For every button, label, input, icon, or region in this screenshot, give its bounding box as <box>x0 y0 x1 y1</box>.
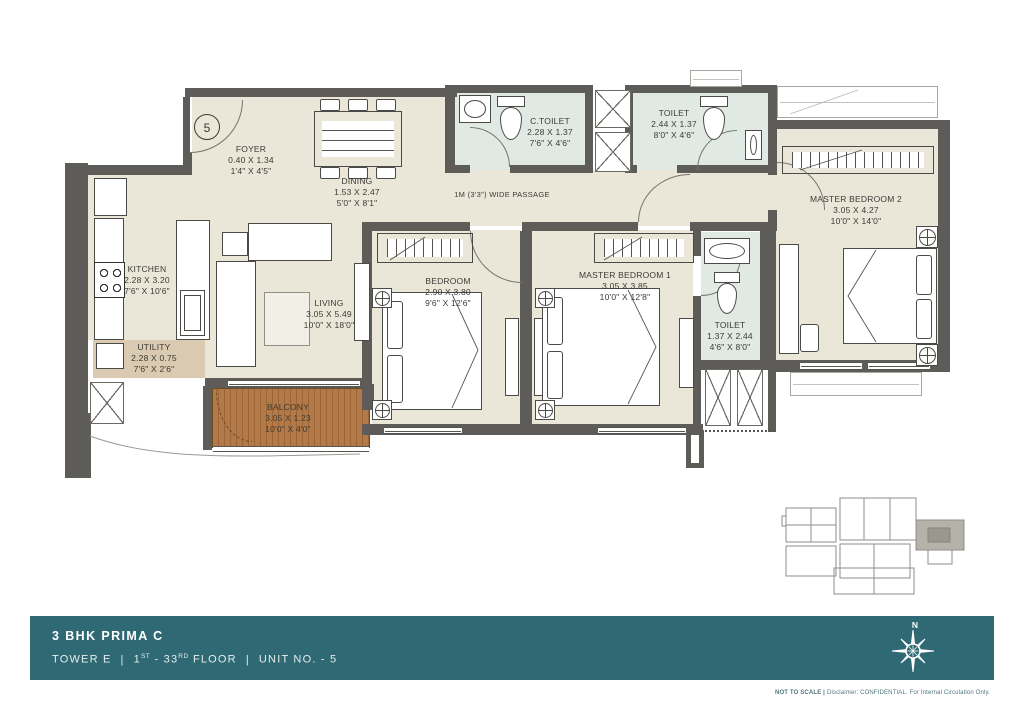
wardrobe <box>377 233 473 263</box>
wall-segment <box>88 165 192 175</box>
unit-number: 5 <box>204 121 211 135</box>
wall-segment <box>362 222 470 231</box>
entry-door-leaf <box>183 97 190 153</box>
room-dim-m: 1.53 X 2.47 <box>312 187 402 198</box>
room-name: BEDROOM <box>400 276 496 287</box>
shaft-box <box>595 90 631 128</box>
column-marker-icon <box>372 288 392 308</box>
bed <box>843 248 937 344</box>
room-label-master-bedroom-2: MASTER BEDROOM 2 3.05 X 4.27 10'0" X 14'… <box>790 194 922 227</box>
room-dim-ft: 10'0" X 12'8" <box>558 292 692 303</box>
floor-range-start-suffix: ST <box>141 653 150 660</box>
room-name: TOILET <box>694 320 766 331</box>
dining-chair <box>320 99 340 111</box>
room-label-foyer: FOYER 0.40 X 1.34 1'4" X 4'5" <box>205 144 297 177</box>
dining-chair <box>376 99 396 111</box>
sofa <box>248 223 332 261</box>
column-marker-icon <box>372 400 392 420</box>
washbasin-icon <box>745 130 762 160</box>
pillow <box>547 351 563 399</box>
room-dim-m: 3.05 X 4.27 <box>790 205 922 216</box>
room-label-common-toilet: C.TOILET 2.28 X 1.37 7'6" X 4'6" <box>506 116 594 149</box>
wc-icon <box>714 272 740 314</box>
room-label-dining: DINING 1.53 X 2.47 5'0" X 8'1" <box>312 176 402 209</box>
compass-north-label: N <box>892 621 938 630</box>
dining-table <box>314 111 402 167</box>
page: 5 FOYER 0.40 X 1.34 1'4" X 4'5" DINING 1… <box>0 0 1024 724</box>
floor-word: FLOOR <box>193 654 237 666</box>
room-label-kitchen: KITCHEN 2.28 X 3.20 7'6" X 10'6" <box>108 264 186 297</box>
refrigerator <box>94 178 127 216</box>
column-marker-icon <box>535 400 555 420</box>
wall-segment <box>938 120 950 372</box>
room-dim-ft: 10'0" X 18'0" <box>288 320 370 331</box>
separator: | <box>121 654 125 666</box>
room-dim-m: 1.37 X 2.44 <box>694 331 766 342</box>
room-name: BALCONY <box>242 402 334 413</box>
column-marker-icon <box>916 344 938 366</box>
room-name: C.TOILET <box>506 116 594 127</box>
dresser <box>679 318 694 388</box>
room-dim-ft: 1'4" X 4'5" <box>205 166 297 177</box>
column-marker-icon <box>916 226 938 248</box>
pillow <box>916 299 932 339</box>
sliding-door <box>228 380 360 387</box>
compass-icon <box>892 630 934 672</box>
wall-segment <box>522 222 638 231</box>
room-dim-ft: 9'6" X 12'6" <box>400 298 496 309</box>
shaft-box <box>595 132 631 172</box>
key-plan <box>778 492 968 597</box>
room-name: LIVING <box>288 298 370 309</box>
room-label-toilet-top: TOILET 2.44 X 1.37 8'0" X 4'6" <box>628 108 720 141</box>
disclaimer-note: NOT TO SCALE |Disclaimer: CONFIDENTIAL. … <box>775 690 990 696</box>
wall-segment <box>690 222 776 231</box>
washbasin-icon <box>704 238 750 264</box>
shaft-box <box>90 382 124 424</box>
unit-subtitle: TOWER E|1ST - 33RD FLOOR|UNIT NO. - 5 <box>52 653 337 666</box>
floor-range-end-suffix: RD <box>178 653 188 660</box>
room-dim-ft: 4'6" X 8'0" <box>694 342 766 353</box>
pillow <box>916 255 932 295</box>
floor-range-start: 1 <box>134 654 141 666</box>
wall-segment <box>510 165 593 173</box>
room-dim-m: 2.44 X 1.37 <box>628 119 720 130</box>
room-name: DINING <box>312 176 402 187</box>
unit-title: 3 BHK PRIMA C <box>52 629 164 643</box>
sofa-chaise <box>216 261 256 367</box>
unit-number-label: UNIT NO. - 5 <box>259 654 337 666</box>
bedside-unit <box>505 318 519 396</box>
room-dim-ft: 5'0" X 8'1" <box>312 198 402 209</box>
wall-segment <box>445 165 470 173</box>
compass: N <box>892 621 938 675</box>
floor-range-end: - 33 <box>155 654 179 666</box>
wall-segment <box>768 368 776 432</box>
room-dim-m: 2.28 X 0.75 <box>108 353 200 364</box>
chair <box>800 324 819 352</box>
window <box>384 427 462 434</box>
room-dim-m: 3.05 X 5.49 <box>288 309 370 320</box>
room-dim-ft: 7'6" X 2'6" <box>108 364 200 375</box>
wardrobe <box>782 146 934 174</box>
room-dim-m: 0.40 X 1.34 <box>205 155 297 166</box>
room-name: UTILITY <box>108 342 200 353</box>
pillow <box>387 355 403 403</box>
room-dim-m: 2.90 X 3.80 <box>400 287 496 298</box>
room-dim-ft: 7'6" X 4'6" <box>506 138 594 149</box>
wardrobe <box>594 233 694 263</box>
room-dim-m: 2.28 X 3.20 <box>108 275 186 286</box>
dotted-projection-line <box>701 430 775 432</box>
room-label-living: LIVING 3.05 X 5.49 10'0" X 18'0" <box>288 298 370 331</box>
ledge-top-right <box>777 86 938 118</box>
study-desk <box>779 244 799 354</box>
ledge-below-master-bedroom-2 <box>790 372 922 396</box>
room-name: TOILET <box>628 108 720 119</box>
room-dim-ft: 10'0" X 4'0" <box>242 424 334 435</box>
room-label-master-bedroom-1: MASTER BEDROOM 1 3.05 X 3.85 10'0" X 12'… <box>558 270 692 303</box>
wall-segment <box>203 386 212 450</box>
wall-segment <box>693 368 701 432</box>
column-marker-icon <box>535 288 555 308</box>
room-dim-m: 2.28 X 1.37 <box>506 127 594 138</box>
window <box>800 362 862 370</box>
room-name: KITCHEN <box>108 264 186 275</box>
room-label-balcony: BALCONY 3.05 X 1.23 10'0" X 4'0" <box>242 402 334 435</box>
shaft-box <box>705 369 731 426</box>
washbasin-icon <box>459 95 491 123</box>
shaft-box <box>737 369 763 426</box>
ledge-above-toilet <box>690 70 742 87</box>
room-name: MASTER BEDROOM 1 <box>558 270 692 281</box>
wall-segment <box>693 231 701 256</box>
wall-segment <box>776 120 950 129</box>
separator: | <box>246 654 250 666</box>
room-name: FOYER <box>205 144 297 155</box>
room-dim-ft: 7'6" X 10'6" <box>108 286 186 297</box>
side-table <box>222 232 248 256</box>
wall-segment <box>768 85 777 175</box>
passage-label: 1M (3'3") WIDE PASSAGE <box>438 190 566 199</box>
wall-segment <box>185 88 457 97</box>
wall-segment <box>445 85 593 93</box>
wall-segment <box>445 85 455 172</box>
unit-number-circle: 5 <box>194 114 220 140</box>
window <box>598 427 686 434</box>
room-dim-ft: 10'0" X 14'0" <box>790 216 922 227</box>
room-dim-m: 3.05 X 1.23 <box>242 413 334 424</box>
balcony-railing <box>213 446 369 452</box>
wall-segment <box>65 413 91 478</box>
bed <box>382 292 482 410</box>
column-hollow <box>686 430 704 468</box>
room-label-utility: UTILITY 2.28 X 0.75 7'6" X 2'6" <box>108 342 200 375</box>
room-label-toilet-mid: TOILET 1.37 X 2.44 4'6" X 8'0" <box>694 320 766 353</box>
disclaimer-text: Disclaimer: CONFIDENTIAL. For Internal C… <box>827 690 990 696</box>
room-label-bedroom: BEDROOM 2.90 X 3.80 9'6" X 12'6" <box>400 276 496 309</box>
room-name: MASTER BEDROOM 2 <box>790 194 922 205</box>
dining-chair <box>348 99 368 111</box>
wall-segment <box>65 163 88 413</box>
disclaimer-bold: NOT TO SCALE | <box>775 690 825 696</box>
tower-label: TOWER E <box>52 654 112 666</box>
room-dim-ft: 8'0" X 4'6" <box>628 130 720 141</box>
title-banner: 3 BHK PRIMA C TOWER E|1ST - 33RD FLOOR|U… <box>30 616 994 680</box>
room-dim-m: 3.05 X 3.85 <box>558 281 692 292</box>
bed <box>542 288 660 406</box>
